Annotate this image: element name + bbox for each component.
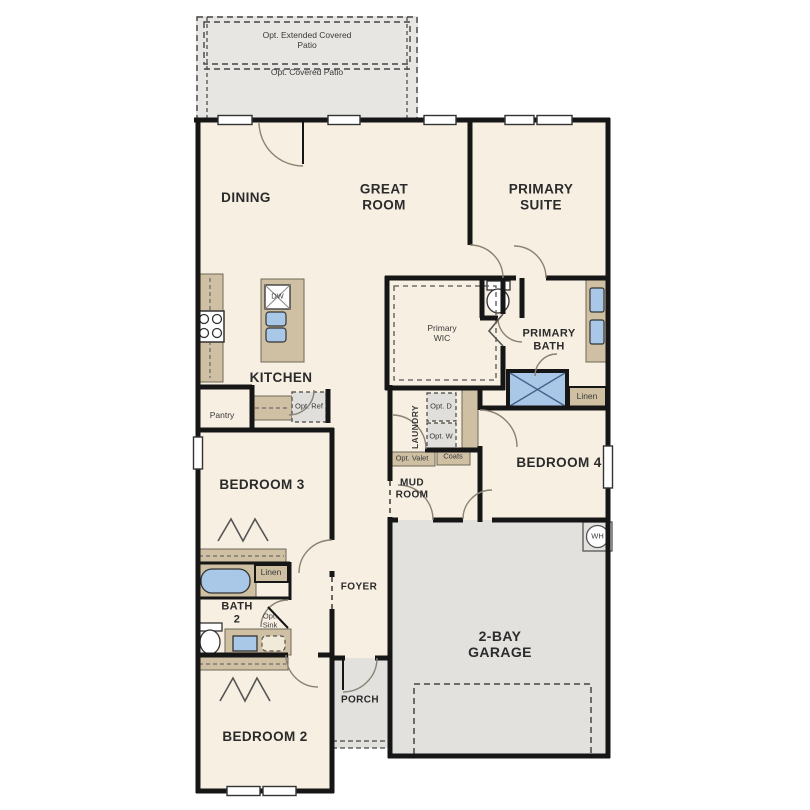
label-laundry: LAUNDRY [411, 397, 421, 457]
primary-toilet [487, 281, 510, 313]
bath2-toilet [199, 623, 222, 654]
label-coats: Coats [436, 453, 470, 462]
label-water-heater: WH [588, 532, 608, 541]
label-primary-bath: PRIMARY BATH [518, 327, 580, 352]
bath2-vanity [225, 629, 291, 655]
label-mud-room: MUD ROOM [389, 478, 435, 501]
floor-plan: Opt. Extended Covered Patio Opt. Covered… [0, 0, 810, 810]
label-bedroom-4: BEDROOM 4 [504, 455, 614, 471]
label-bedroom-2: BEDROOM 2 [210, 729, 320, 745]
label-opt-w: Opt. W [429, 433, 453, 442]
label-linen-primary: Linen [567, 392, 607, 402]
label-foyer: FOYER [334, 581, 384, 593]
label-patio-extended: Opt. Extended Covered Patio [252, 31, 362, 51]
label-great-room: GREAT ROOM [349, 181, 419, 212]
label-linen-bath2: Linen [251, 568, 291, 578]
label-primary-wic: Primary WIC [418, 324, 466, 344]
label-opt-ref: Opt. Ref [295, 403, 323, 412]
label-bedroom-3: BEDROOM 3 [207, 477, 317, 493]
stove [197, 311, 224, 342]
label-opt-sink: Opt. Sink [255, 612, 285, 629]
primary-shower [508, 371, 567, 408]
label-primary-suite: PRIMARY SUITE [500, 181, 582, 212]
label-opt-valet: Opt. Valet [390, 455, 434, 464]
label-pantry: Pantry [197, 411, 247, 421]
label-bath-2: BATH 2 [218, 600, 256, 625]
label-porch: PORCH [335, 694, 385, 706]
label-dishwasher: DW [266, 293, 290, 302]
bathtub [196, 564, 256, 597]
primary-vanity [586, 280, 607, 362]
label-opt-d: Opt. D [429, 403, 453, 412]
label-dining: DINING [201, 190, 291, 206]
floor-plan-geometry [0, 0, 810, 810]
label-kitchen: KITCHEN [236, 370, 326, 386]
label-patio-covered: Opt. Covered Patio [227, 68, 387, 78]
label-garage: 2-BAY GARAGE [455, 628, 545, 660]
